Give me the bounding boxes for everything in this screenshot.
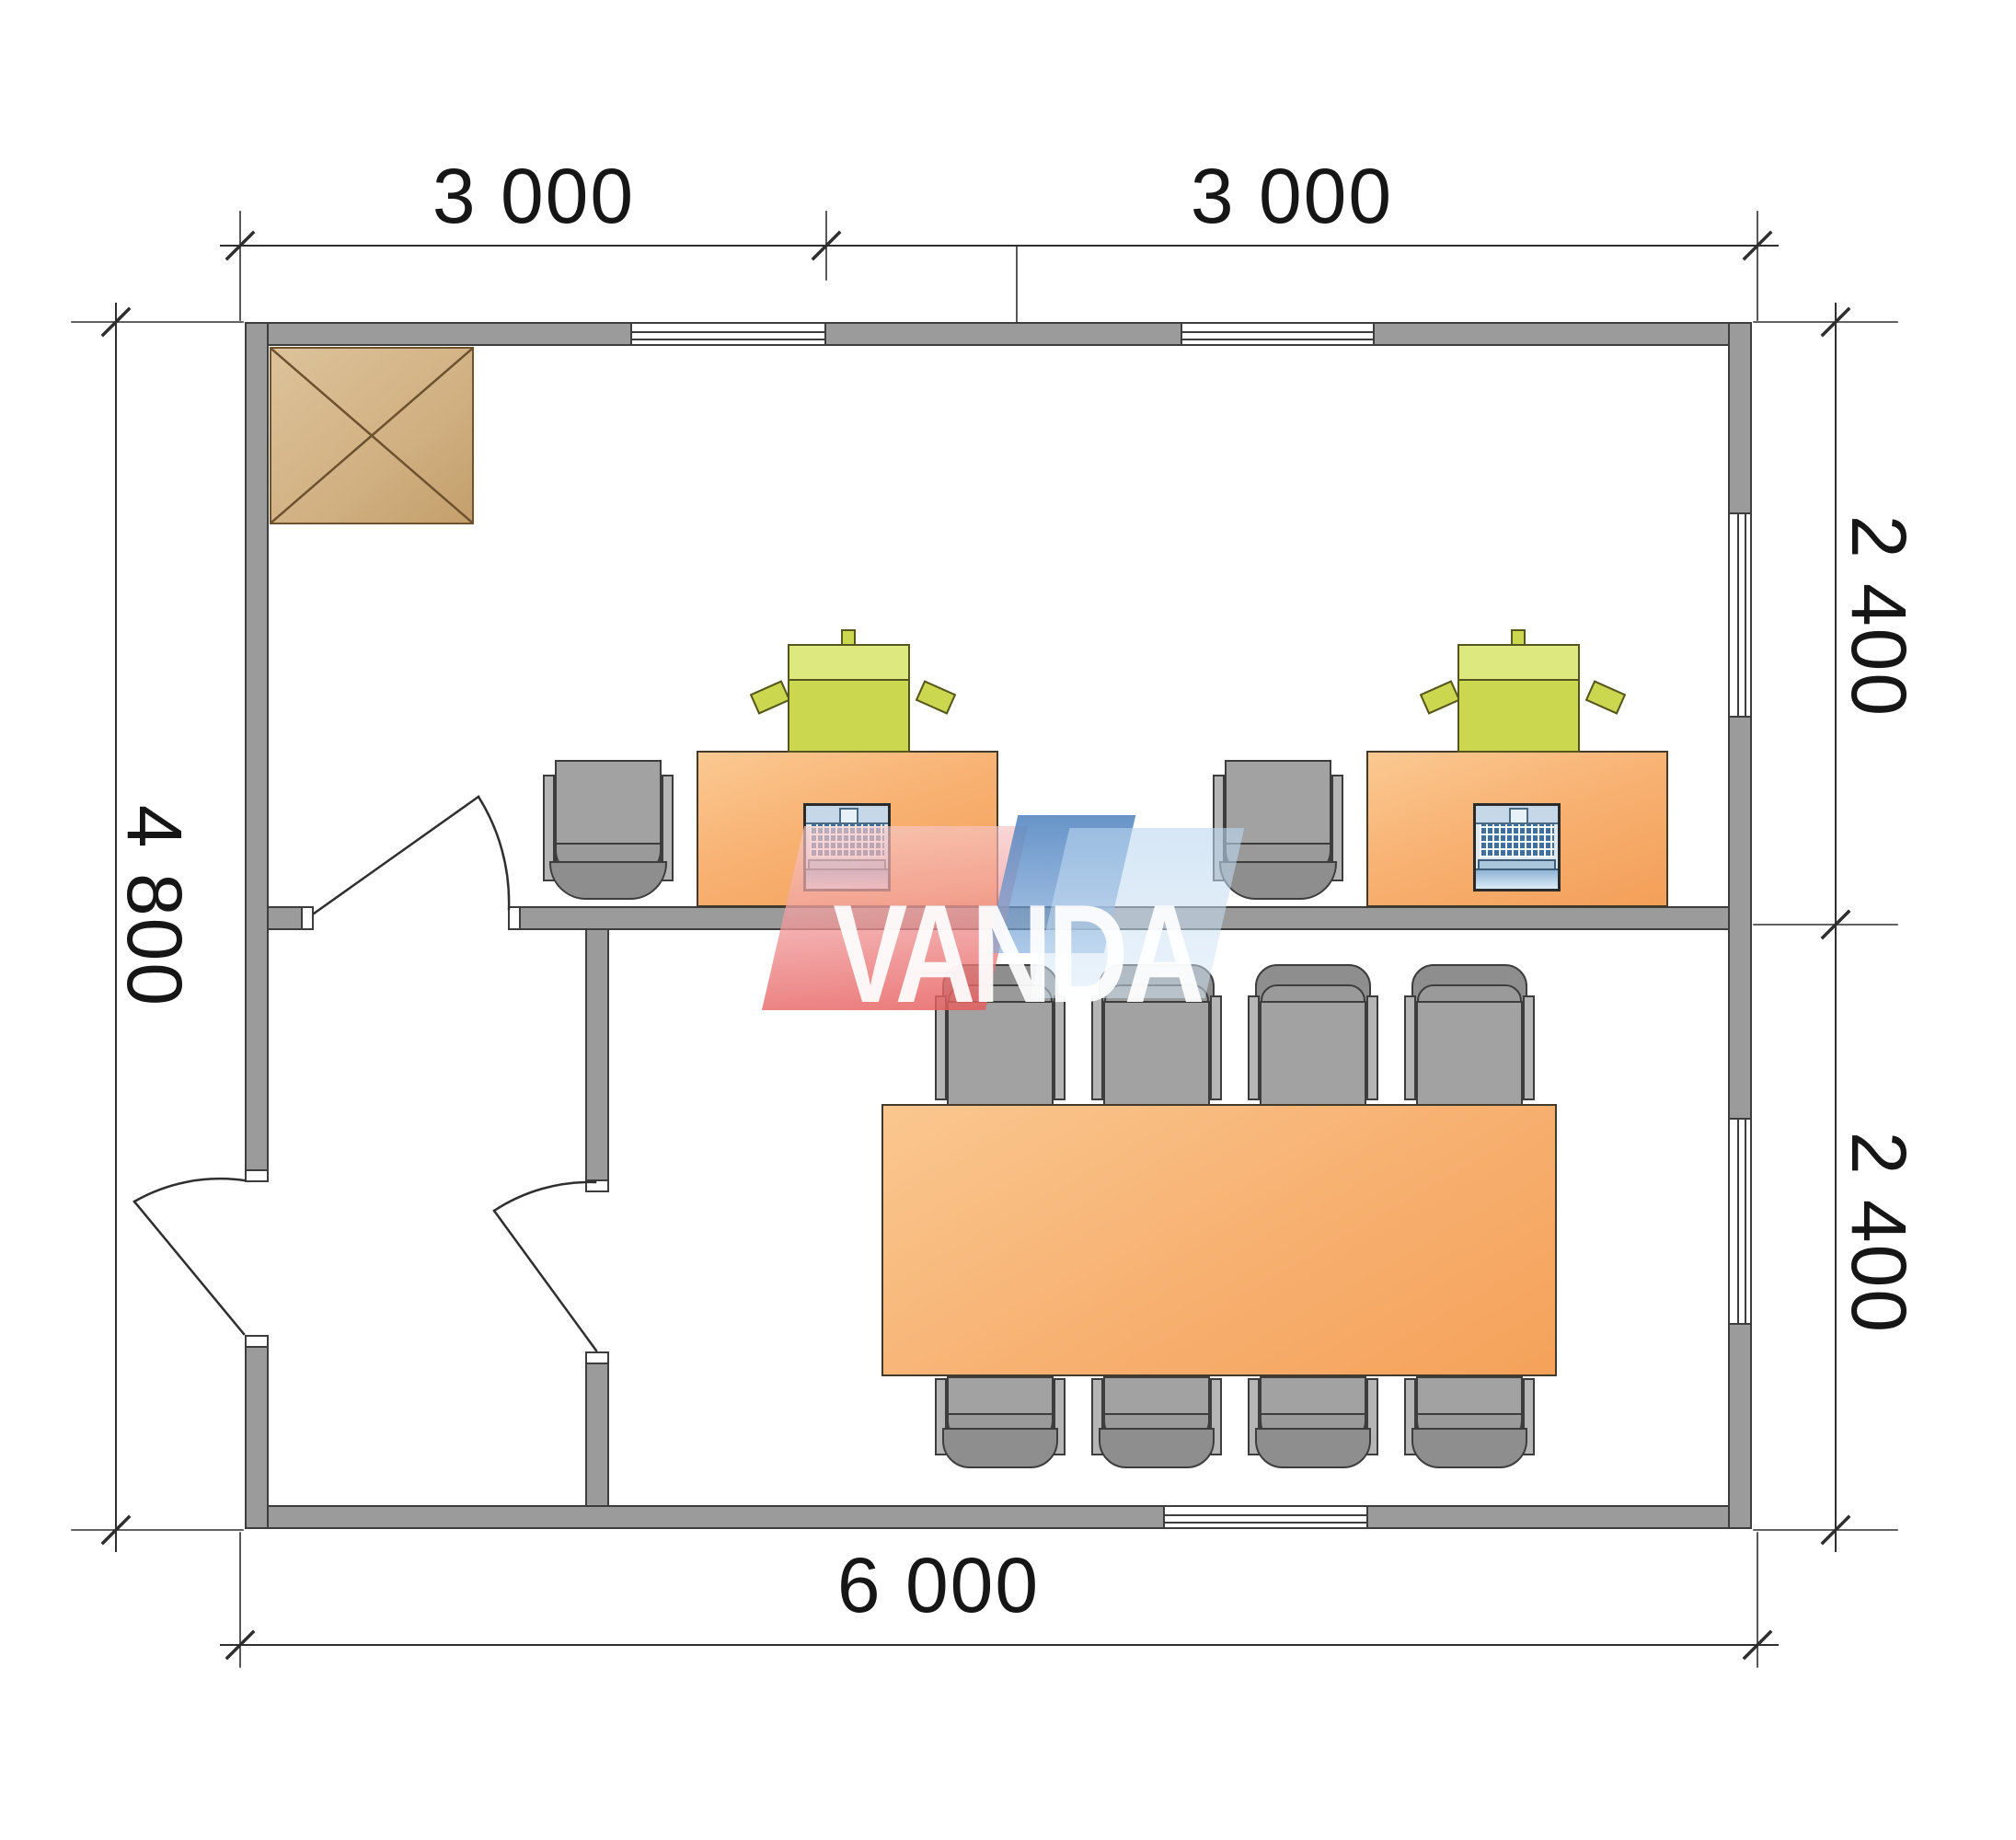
conference-chair — [1404, 964, 1535, 1106]
conference-chair — [1248, 1376, 1378, 1468]
chair-armrest — [1404, 995, 1416, 1100]
conference-chair — [1404, 1376, 1535, 1468]
office-chair — [543, 760, 674, 900]
entrance-door — [134, 1179, 244, 1334]
printer-copier — [1457, 644, 1580, 753]
chair-seat — [1416, 1001, 1523, 1106]
door-2 — [494, 1182, 596, 1351]
chair-armrest — [1248, 995, 1260, 1100]
dimension-label-left: 4 800 — [104, 713, 205, 1099]
chair-backrest — [1099, 1428, 1215, 1468]
dimension-label-right-lower: 2 400 — [1828, 1040, 1930, 1426]
chair-backrest — [1255, 1428, 1371, 1468]
conference-table — [881, 1104, 1557, 1376]
conference-chair — [935, 1376, 1066, 1468]
dimension-label-bottom: 6 000 — [745, 1535, 1132, 1636]
floor-plan: 3 000 3 000 6 000 4 800 2 400 2 400 — [0, 0, 2016, 1840]
laptop — [1473, 803, 1561, 891]
printer-copier — [788, 644, 910, 753]
conference-chair — [1248, 964, 1378, 1106]
chair-backrest — [1411, 1428, 1527, 1468]
chair-seat — [1260, 1001, 1366, 1106]
chair-armrest — [1523, 995, 1535, 1100]
vanda-watermark: VANDA — [778, 810, 1238, 1017]
chair-backrest — [942, 1428, 1058, 1468]
door-1 — [314, 797, 509, 914]
watermark-text: VANDA — [796, 900, 1238, 1010]
dimension-label-top-left: 3 000 — [340, 145, 727, 247]
chair-armrest — [1366, 995, 1378, 1100]
dimension-label-top-right: 3 000 — [1099, 145, 1485, 247]
conference-chair — [1091, 1376, 1222, 1468]
column-cross-lines — [272, 350, 471, 522]
chair-backrest — [549, 861, 667, 900]
dimension-label-right-upper: 2 400 — [1828, 423, 1930, 810]
